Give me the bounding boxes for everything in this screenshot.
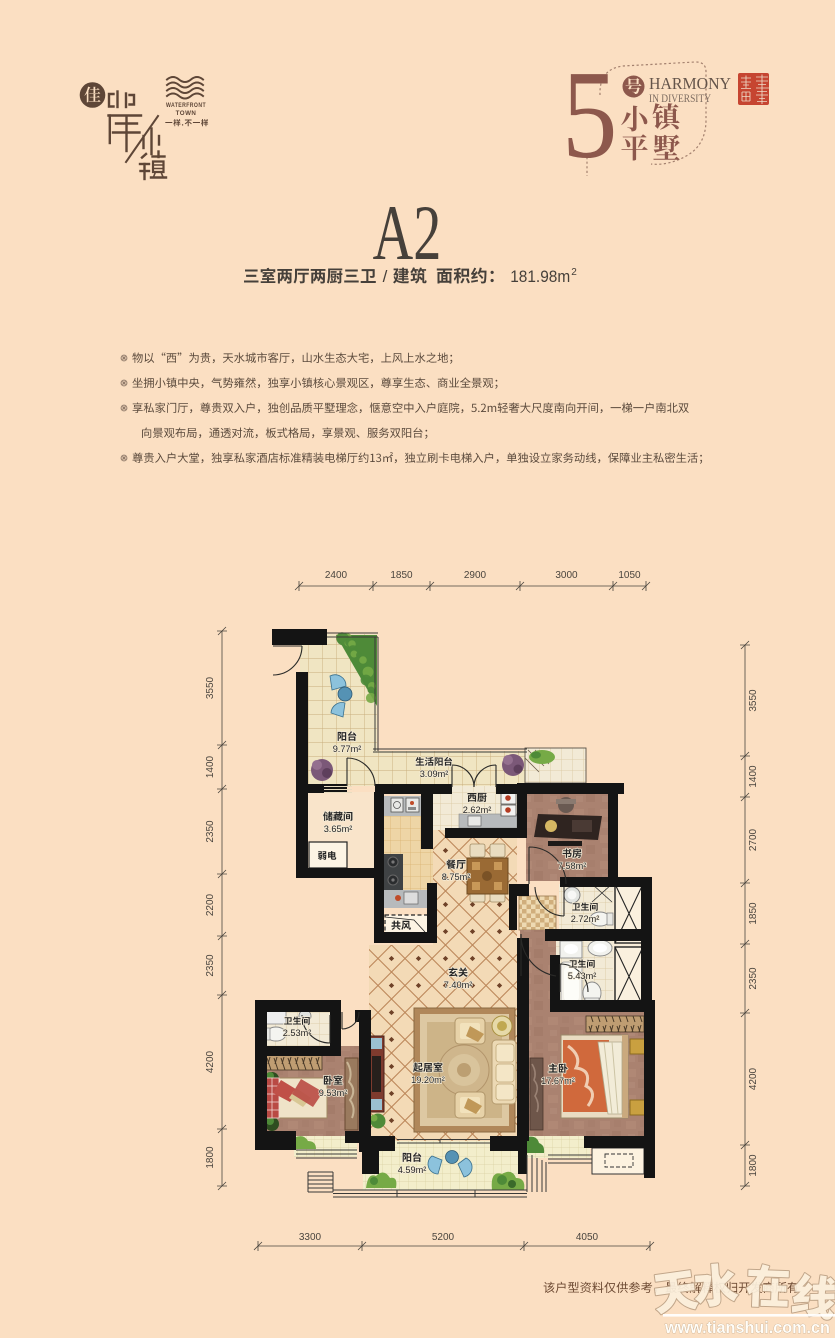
svg-text:www.tianshui.com.cn: www.tianshui.com.cn <box>664 1319 830 1337</box>
svg-text:7.40m²: 7.40m² <box>444 980 473 990</box>
svg-text:HARMONY: HARMONY <box>649 74 731 93</box>
svg-text:19.20m²: 19.20m² <box>411 1075 445 1085</box>
svg-text:2.62m²: 2.62m² <box>463 805 492 815</box>
svg-text:3550: 3550 <box>205 676 216 699</box>
svg-text:1850: 1850 <box>748 902 759 925</box>
svg-text:181.98m: 181.98m <box>510 268 570 286</box>
svg-text:IN DIVERSITY: IN DIVERSITY <box>649 93 712 105</box>
svg-text:2: 2 <box>571 267 577 278</box>
svg-text:5200: 5200 <box>432 1232 455 1243</box>
svg-text:2700: 2700 <box>748 828 759 851</box>
svg-text:TOWN: TOWN <box>176 110 197 117</box>
svg-text:4200: 4200 <box>205 1050 216 1073</box>
svg-text:2350: 2350 <box>748 967 759 990</box>
svg-text:2350: 2350 <box>205 954 216 977</box>
svg-text:1400: 1400 <box>205 755 216 778</box>
svg-text:8.75m²: 8.75m² <box>442 872 471 882</box>
svg-text:4.59m²: 4.59m² <box>398 1165 427 1175</box>
svg-text:4050: 4050 <box>576 1232 599 1243</box>
svg-text:1400: 1400 <box>748 765 759 788</box>
svg-text:9.77m²: 9.77m² <box>333 744 362 754</box>
svg-text:2900: 2900 <box>464 570 487 581</box>
svg-text:2.53m²: 2.53m² <box>283 1028 312 1038</box>
svg-text:2400: 2400 <box>325 570 348 581</box>
svg-text:2200: 2200 <box>205 893 216 916</box>
svg-text:3550: 3550 <box>748 689 759 712</box>
svg-text:3000: 3000 <box>555 570 578 581</box>
svg-text:3.09m²: 3.09m² <box>420 769 449 779</box>
svg-text:3300: 3300 <box>299 1232 322 1243</box>
svg-text:7.58m²: 7.58m² <box>558 861 587 871</box>
svg-text:1800: 1800 <box>205 1146 216 1169</box>
svg-text:WATERFRONT: WATERFRONT <box>166 102 206 109</box>
svg-text:3.65m²: 3.65m² <box>324 824 353 834</box>
svg-text:2.72m²: 2.72m² <box>571 914 600 924</box>
svg-text:17.67m²: 17.67m² <box>541 1076 575 1086</box>
svg-text:5.43m²: 5.43m² <box>568 971 597 981</box>
svg-text:/: / <box>383 267 388 286</box>
svg-text:1850: 1850 <box>390 570 413 581</box>
svg-text:1800: 1800 <box>748 1154 759 1177</box>
svg-text:1050: 1050 <box>618 570 641 581</box>
svg-text:5: 5 <box>562 45 617 185</box>
svg-text:9.53m²: 9.53m² <box>319 1088 348 1098</box>
svg-text:2350: 2350 <box>205 820 216 843</box>
svg-text:4200: 4200 <box>748 1067 759 1090</box>
